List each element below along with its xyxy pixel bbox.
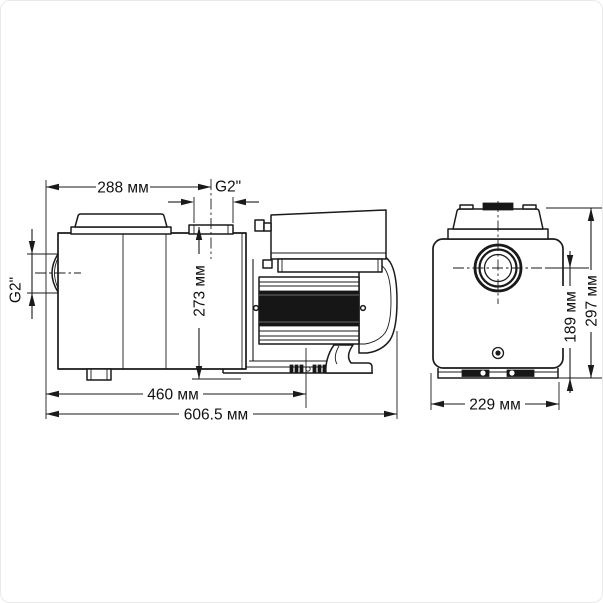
mounting-slots xyxy=(462,370,534,377)
dim-288: 288 мм xyxy=(46,178,211,196)
front-base xyxy=(438,368,558,378)
side-view: 288 мм G2" G2" 273 мм xyxy=(7,178,397,423)
pump-body xyxy=(58,233,246,369)
tie-bolt xyxy=(254,306,259,311)
dim-inlet-g2: G2" xyxy=(7,229,58,319)
dim-297-label: 297 мм xyxy=(583,275,600,326)
terminal-box xyxy=(263,210,386,272)
mounting-slots xyxy=(290,365,326,373)
dim-606-label: 606.5 мм xyxy=(184,406,248,423)
dim-288-label: 288 мм xyxy=(97,179,148,196)
dim-189: 189 мм xyxy=(562,251,579,393)
pump-foot xyxy=(87,369,111,380)
dim-273-label: 273 мм xyxy=(191,265,208,316)
tie-bolt xyxy=(361,306,366,311)
dim-outlet-g2: G2" xyxy=(168,178,259,223)
outlet-g2-label: G2" xyxy=(215,178,241,195)
front-view: 189 мм 297 мм 229 мм xyxy=(431,201,603,413)
inlet-g2-label: G2" xyxy=(7,277,24,303)
dim-297: 297 мм xyxy=(583,208,600,378)
dim-189-label: 189 мм xyxy=(562,291,579,342)
cable-gland xyxy=(255,220,271,231)
strainer-lid xyxy=(71,214,171,234)
dim-229: 229 мм xyxy=(431,373,559,413)
motor xyxy=(253,210,397,373)
dim-460-label: 460 мм xyxy=(147,386,198,403)
pump-dimensional-drawing: 288 мм G2" G2" 273 мм xyxy=(1,1,603,603)
drawing-canvas: 288 мм G2" G2" 273 мм xyxy=(0,0,603,603)
motor-fins xyxy=(259,291,359,326)
dim-229-label: 229 мм xyxy=(469,396,520,413)
